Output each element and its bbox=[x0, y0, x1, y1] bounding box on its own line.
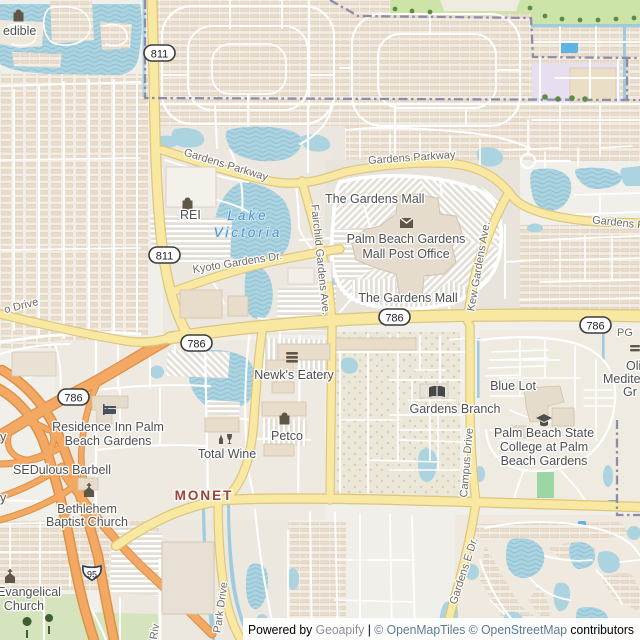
svg-text:Baptist Church: Baptist Church bbox=[46, 515, 128, 529]
svg-text:Gr: Gr bbox=[623, 385, 637, 399]
svg-text:786: 786 bbox=[187, 339, 205, 351]
svg-text:811: 811 bbox=[151, 49, 169, 61]
svg-text:786: 786 bbox=[586, 321, 604, 333]
svg-text:Powered by Geoapify | © OpenMa: Powered by Geoapify | © OpenMapTiles © O… bbox=[248, 622, 634, 637]
svg-text:Lake: Lake bbox=[227, 208, 268, 223]
svg-text:The Gardens Mall: The Gardens Mall bbox=[358, 291, 457, 305]
svg-text:Mall Post Office: Mall Post Office bbox=[362, 247, 449, 261]
svg-text:Residence Inn Palm: Residence Inn Palm bbox=[52, 420, 164, 434]
svg-text:Newk's Eatery: Newk's Eatery bbox=[254, 368, 334, 382]
svg-text:Riv: Riv bbox=[148, 622, 162, 640]
svg-text:Beach Gardens: Beach Gardens bbox=[65, 434, 152, 448]
svg-text:SEDulous Barbell: SEDulous Barbell bbox=[13, 463, 111, 477]
svg-text:edible: edible bbox=[3, 24, 36, 38]
svg-text:95: 95 bbox=[87, 570, 97, 580]
svg-text:Oliv: Oliv bbox=[626, 359, 640, 373]
svg-text:Blue Lot: Blue Lot bbox=[490, 379, 536, 393]
svg-text:Palm Beach State: Palm Beach State bbox=[494, 426, 594, 440]
svg-text:Palm Beach Gardens: Palm Beach Gardens bbox=[347, 232, 466, 246]
svg-text:Total Wine: Total Wine bbox=[198, 447, 256, 461]
svg-text:786: 786 bbox=[385, 313, 403, 325]
svg-text:811: 811 bbox=[156, 251, 174, 263]
svg-text:Petco: Petco bbox=[271, 429, 303, 443]
svg-text:Mediterr: Mediterr bbox=[603, 372, 640, 386]
svg-text:REI: REI bbox=[180, 208, 201, 222]
svg-text:y: y bbox=[0, 491, 7, 505]
svg-text:y: y bbox=[0, 430, 7, 444]
svg-text:786: 786 bbox=[64, 393, 82, 405]
svg-text:Gardens Branch: Gardens Branch bbox=[409, 402, 500, 416]
svg-text:MONET: MONET bbox=[175, 488, 234, 503]
svg-text:College at Palm: College at Palm bbox=[500, 440, 588, 454]
svg-text:Beach Gardens: Beach Gardens bbox=[501, 454, 588, 468]
svg-text:PG: PG bbox=[617, 327, 633, 339]
svg-text:Bethlehem: Bethlehem bbox=[57, 502, 117, 516]
svg-text:Church: Church bbox=[4, 599, 44, 613]
svg-text:Victoria: Victoria bbox=[214, 225, 283, 240]
svg-text:The Gardens Mall: The Gardens Mall bbox=[325, 192, 424, 206]
svg-text:Evangelical: Evangelical bbox=[0, 585, 61, 599]
